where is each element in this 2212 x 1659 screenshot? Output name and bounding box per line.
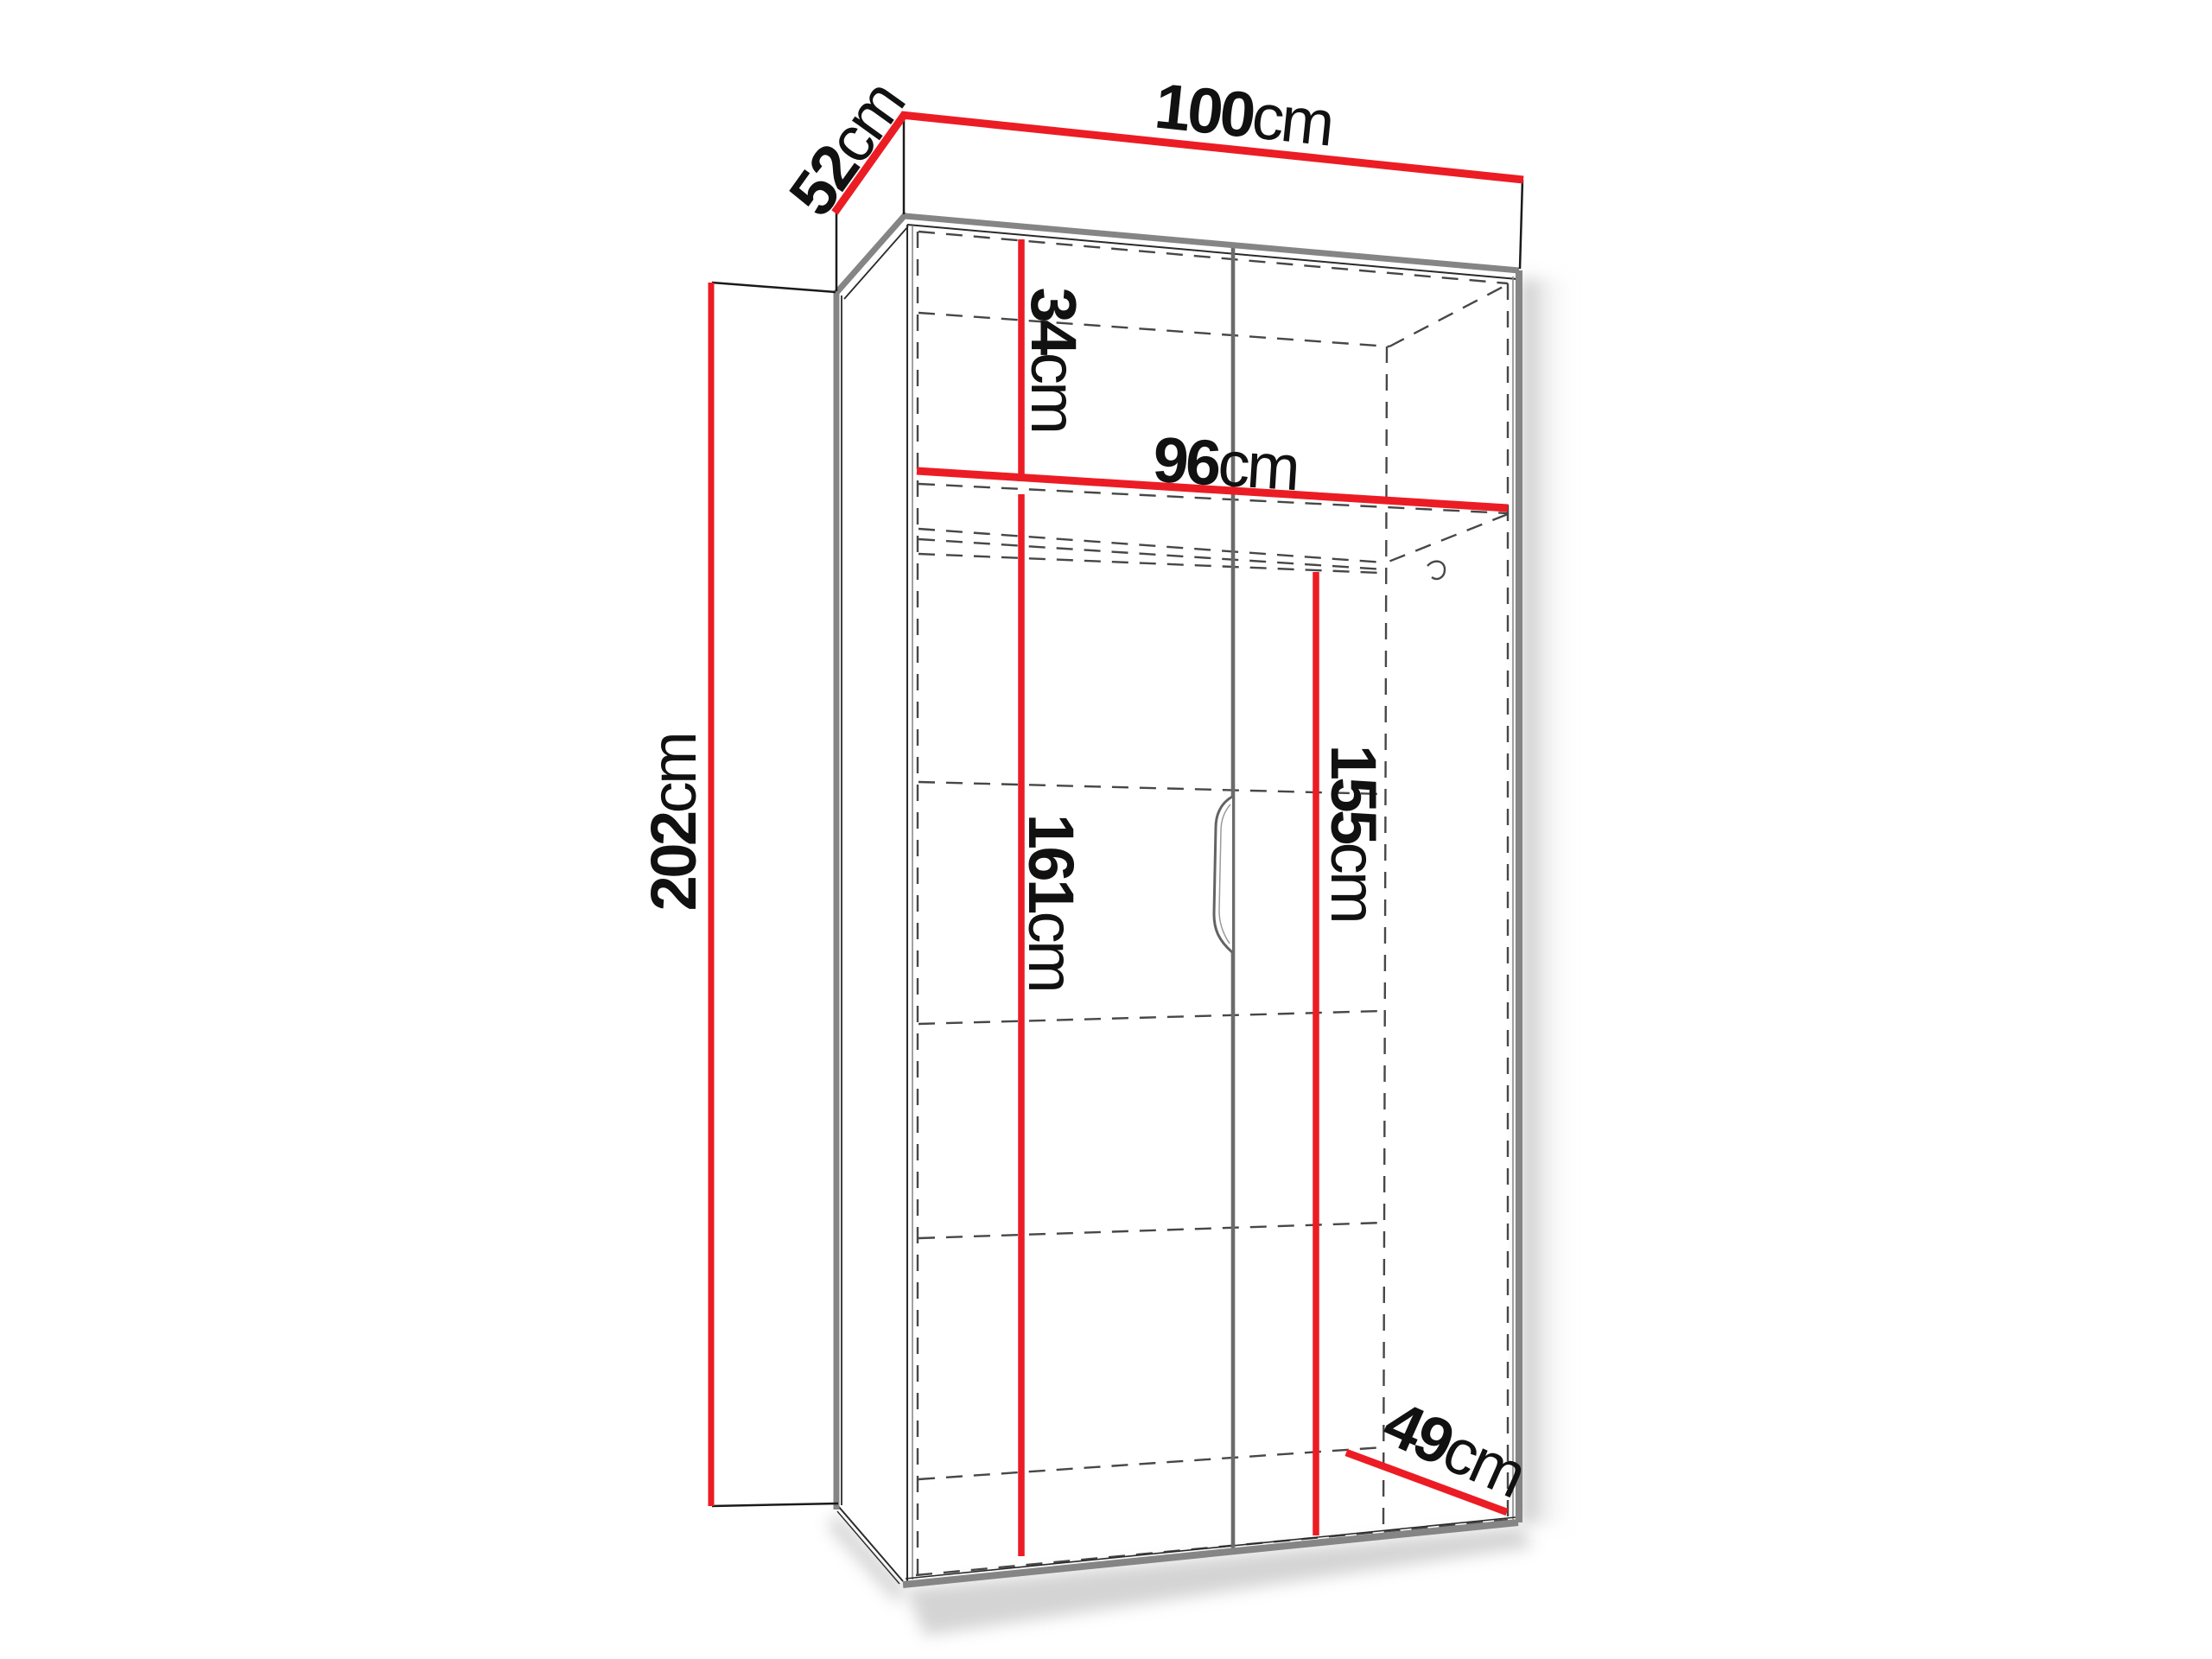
svg-text:96cm: 96cm [1151,423,1300,503]
svg-text:52cm: 52cm [775,69,918,228]
svg-text:34cm: 34cm [1019,288,1090,432]
svg-text:202cm: 202cm [638,734,709,912]
svg-text:155cm: 155cm [1319,745,1390,922]
svg-text:161cm: 161cm [1016,814,1088,991]
